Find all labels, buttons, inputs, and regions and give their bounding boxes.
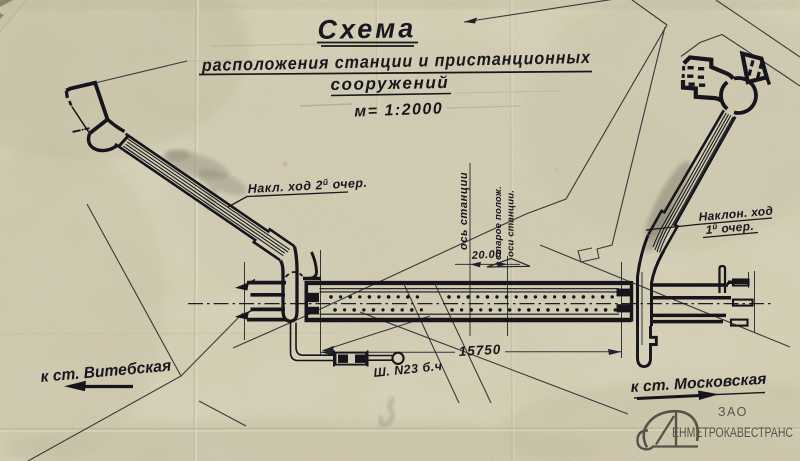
svg-text:ось станции: ось станции xyxy=(458,172,470,250)
svg-text:ЕНМЕТРОКАВЕСТРАНС: ЕНМЕТРОКАВЕСТРАНС xyxy=(672,425,793,440)
svg-text:м= 1:2000: м= 1:2000 xyxy=(354,100,443,120)
svg-text:20.00: 20.00 xyxy=(471,248,503,262)
svg-text:оси станции.: оси станции. xyxy=(506,190,517,257)
svg-text:15750: 15750 xyxy=(458,342,501,359)
svg-text:сооружений: сооружений xyxy=(330,73,449,94)
svg-text:ЗАО: ЗАО xyxy=(718,405,748,419)
svg-text:Схема: Схема xyxy=(317,13,416,45)
